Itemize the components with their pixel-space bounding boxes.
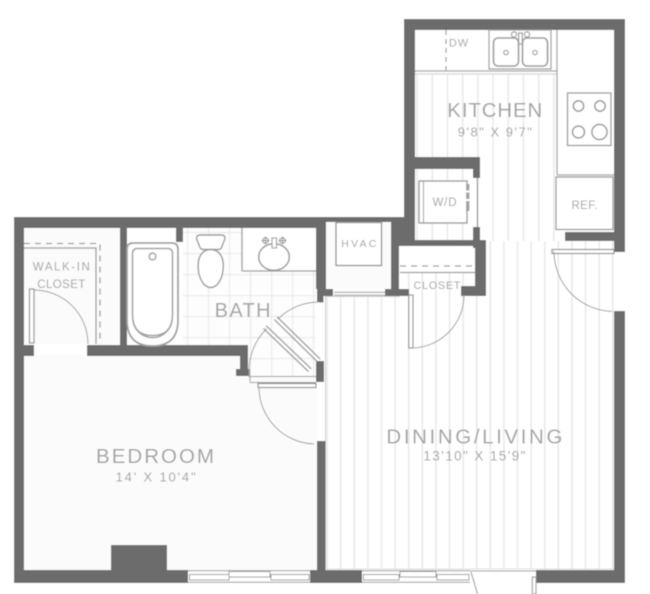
svg-text:BEDROOM: BEDROOM: [96, 445, 214, 468]
svg-text:WALK-IN: WALK-IN: [33, 262, 90, 274]
svg-text:9'8" X 9'7": 9'8" X 9'7": [458, 124, 532, 139]
svg-text:DW: DW: [449, 37, 469, 49]
svg-text:DINING/LIVING: DINING/LIVING: [386, 425, 562, 448]
svg-text:REF.: REF.: [572, 200, 599, 212]
svg-text:14' X 10'4": 14' X 10'4": [116, 470, 196, 485]
svg-text:W/D: W/D: [433, 197, 458, 209]
svg-text:KITCHEN: KITCHEN: [447, 99, 542, 122]
svg-text:CLOSET: CLOSET: [37, 279, 85, 291]
svg-text:HVAC: HVAC: [341, 238, 376, 250]
svg-text:BATH: BATH: [215, 300, 271, 322]
svg-text:CLOSET: CLOSET: [414, 280, 461, 292]
